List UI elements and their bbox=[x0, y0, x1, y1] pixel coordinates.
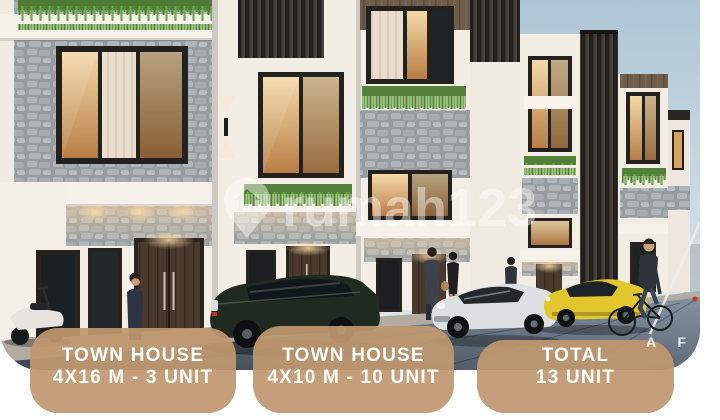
property-render-photo bbox=[0, 0, 700, 370]
louvre-tower bbox=[580, 30, 618, 298]
corner-watermark: A F A bbox=[646, 334, 720, 350]
badge-line1: TOTAL bbox=[477, 345, 674, 367]
townhouse-unit-4 bbox=[470, 0, 580, 302]
louvre-cap bbox=[580, 30, 618, 34]
tail-light bbox=[692, 296, 697, 301]
townhouse-type-badge-1: TOWN HOUSE 4X16 M - 3 UNIT bbox=[30, 328, 236, 413]
townhouse-unit-1 bbox=[0, 0, 212, 340]
badge-line1: TOWN HOUSE bbox=[30, 345, 236, 367]
badge-line2: 4X10 M - 10 UNIT bbox=[253, 367, 454, 389]
badge-line2: 13 UNIT bbox=[477, 367, 674, 389]
townhouse-unit-6 bbox=[668, 110, 690, 292]
townhouse-type-badge-2: TOWN HOUSE 4X10 M - 10 UNIT bbox=[253, 326, 454, 413]
townhouse-unit-2 bbox=[212, 0, 356, 322]
townhouse-scene bbox=[0, 0, 700, 370]
badge-line2: 4X16 M - 3 UNIT bbox=[30, 367, 236, 389]
badge-line1: TOWN HOUSE bbox=[253, 345, 454, 367]
total-units-badge: TOTAL 13 UNIT bbox=[477, 340, 674, 413]
